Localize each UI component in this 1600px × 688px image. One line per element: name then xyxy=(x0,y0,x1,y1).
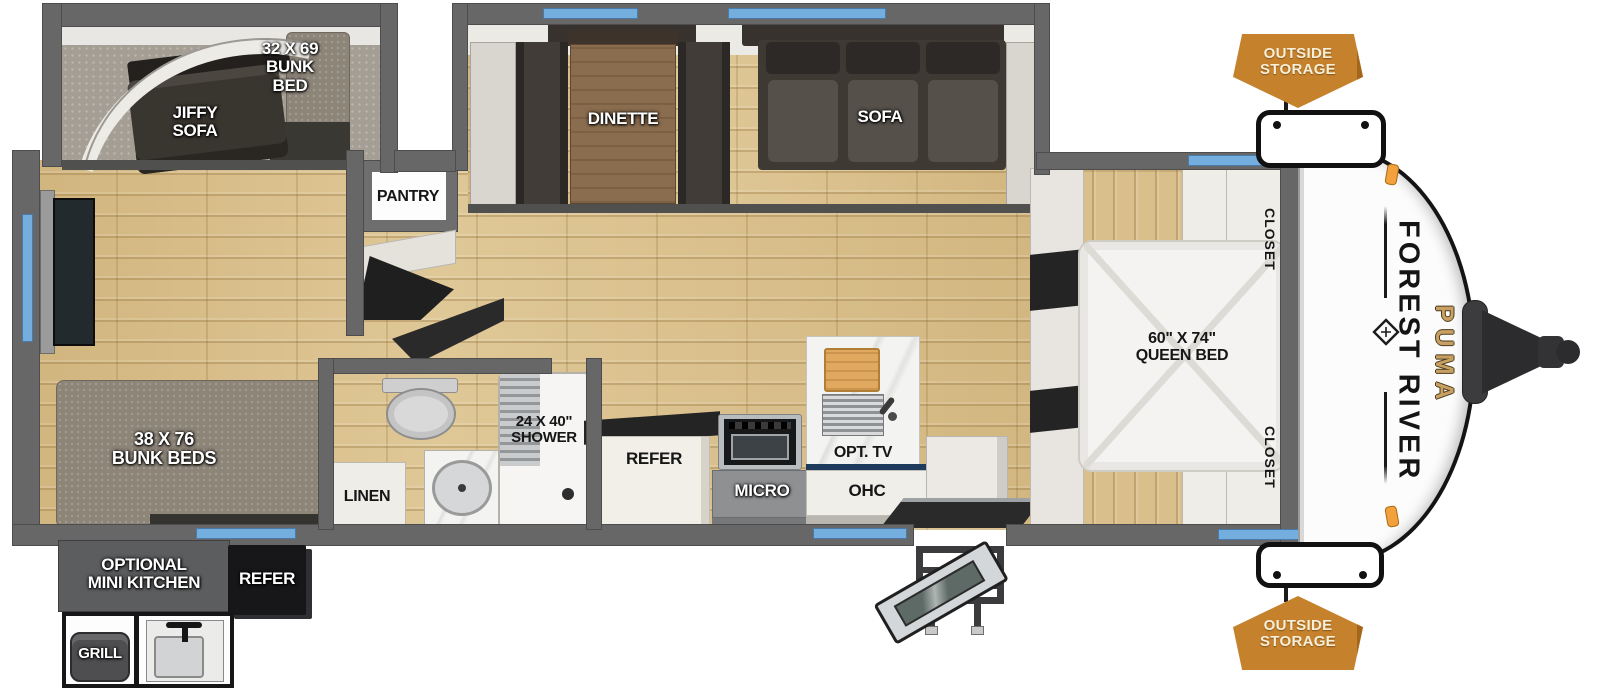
mini-kitchen-label: OPTIONAL MINI KITCHEN xyxy=(62,556,226,593)
bunk-bed-label: 32 X 69 BUNK BED xyxy=(240,40,340,95)
rear-wall xyxy=(12,150,40,546)
kitchen-window xyxy=(813,528,907,539)
wardrobe-niche-top xyxy=(1030,249,1084,311)
opt-tv-label: OPT. TV xyxy=(806,444,920,461)
jiffy-sofa-label: JIFFY SOFA xyxy=(150,104,240,141)
compartment-bolt xyxy=(1273,571,1281,579)
bunkroom-wall xyxy=(346,150,364,336)
step-foot-right xyxy=(971,626,984,635)
bunk-beds-label: 38 X 76 BUNK BEDS xyxy=(84,430,244,469)
linen-label: LINEN xyxy=(328,488,406,505)
rv-floorplan-diagram: 32 X 69 BUNK BED JIFFY SOFA 38 X 76 BUNK… xyxy=(0,0,1600,688)
step-leg-right xyxy=(974,602,981,628)
cutting-board xyxy=(824,348,880,392)
shower-label: 24 X 40" SHOWER xyxy=(498,414,590,446)
forest-river-brand: FOREST RIVER xyxy=(1392,196,1423,506)
brand-accent-line-top xyxy=(1384,206,1387,298)
bunk-slide-edge-trim xyxy=(62,160,382,170)
entry-door-window xyxy=(894,560,986,627)
shower-drain xyxy=(562,488,574,500)
outside-storage-compartment-top xyxy=(1256,110,1386,168)
stove-knobs xyxy=(729,422,791,429)
grill-label: GRILL xyxy=(70,646,130,662)
bath-sink-drain xyxy=(458,484,466,492)
living-slide-edge-trim xyxy=(468,204,1034,213)
stove-oven-window xyxy=(731,434,789,460)
ohc-label: OHC xyxy=(806,482,928,500)
bunk-slide-right-wall xyxy=(380,3,398,173)
step-foot-left xyxy=(925,626,938,635)
hitch-a-frame xyxy=(1482,310,1546,394)
kitchen-sink-cover xyxy=(822,394,884,436)
sofa-window xyxy=(728,8,886,19)
brand-accent-line-bottom xyxy=(1384,392,1387,484)
outside-storage-compartment-bottom xyxy=(1256,542,1384,588)
closet-bottom-label: CLOSET xyxy=(1262,392,1277,522)
dinette-label: DINETTE xyxy=(568,110,678,128)
outdoor-faucet xyxy=(182,622,188,642)
sofa-back-cushion-2 xyxy=(846,42,920,74)
mini-kitchen-refer-label: REFER xyxy=(228,570,306,588)
queen-bed-label: 60" X 74" QUEEN BED xyxy=(1080,330,1284,365)
micro-label: MICRO xyxy=(712,482,812,500)
wardrobe-niche-bottom xyxy=(1030,385,1084,433)
compartment-bolt xyxy=(1273,121,1281,129)
bunk-slide-top-wall xyxy=(42,3,398,27)
toilet-bowl xyxy=(386,388,456,440)
dinette-window xyxy=(543,8,638,19)
bunk-slide-left-wall xyxy=(42,3,62,167)
dinette-bench-right xyxy=(678,42,730,204)
compartment-bolt xyxy=(1361,121,1369,129)
dinette-bench-left xyxy=(516,42,568,204)
rear-window xyxy=(22,214,33,342)
sofa-back-cushion-3 xyxy=(926,42,1000,74)
hitch-ball-knob xyxy=(1556,340,1580,364)
bunkroom-window xyxy=(196,528,296,539)
kitchen-faucet-base xyxy=(888,412,897,421)
outdoor-sink-basin xyxy=(154,636,204,678)
compartment-bolt xyxy=(1359,571,1367,579)
living-slide-right-wall xyxy=(1034,3,1050,175)
pantry-label: PANTRY xyxy=(362,188,454,205)
puma-brand: PUMA xyxy=(1430,268,1457,444)
slide-end-cabinet-left xyxy=(470,42,516,208)
rear-wall-tv xyxy=(53,198,95,346)
bath-top-wall xyxy=(318,358,552,374)
top-wall-mid-segment xyxy=(394,150,456,172)
closet-top-label: CLOSET xyxy=(1262,174,1277,304)
sofa-label: SOFA xyxy=(820,108,940,126)
outside-storage-bottom-label: OUTSIDE STORAGE xyxy=(1237,618,1359,650)
refer-label: REFER xyxy=(598,450,710,468)
mini-kitchen-divider xyxy=(134,612,139,688)
sofa-back-cushion-1 xyxy=(766,42,840,74)
living-slide-left-wall xyxy=(452,3,468,171)
bedroom-wardrobe xyxy=(1030,168,1084,526)
outside-storage-top-label: OUTSIDE STORAGE xyxy=(1237,46,1359,78)
